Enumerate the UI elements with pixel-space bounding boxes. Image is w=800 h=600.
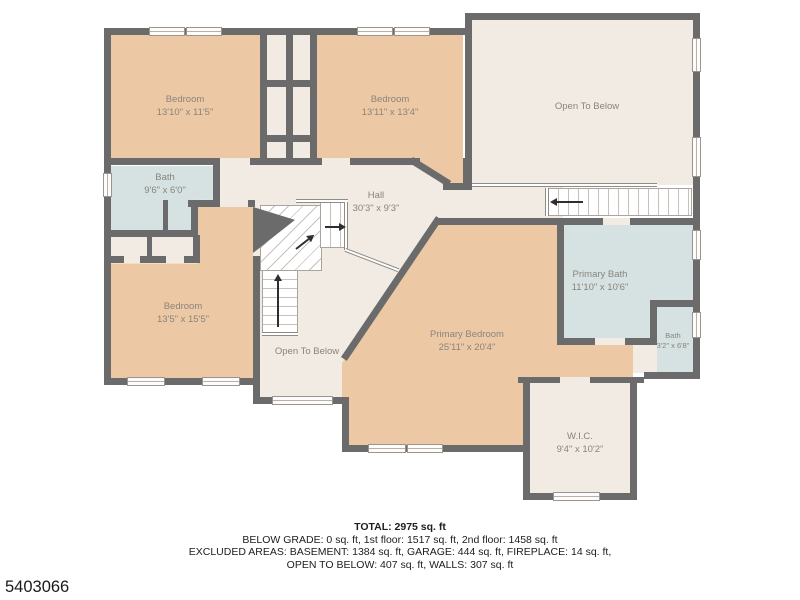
room-label-open-to-below-center: Open To Below [275,345,339,358]
wall [644,372,700,379]
wall [104,28,111,385]
wall [630,377,637,500]
window [692,137,701,177]
wall [248,200,255,207]
room-label-bath-small: Bath3'2" x 6'8" [657,331,690,351]
stairs-top-right-end-railing [545,188,549,216]
window [394,27,430,36]
wall [523,377,530,500]
wall [260,35,267,165]
wall [310,35,317,165]
area-summary: TOTAL: 2975 sq. ft BELOW GRADE: 0 sq. ft… [0,521,800,571]
window [202,377,240,386]
room-label-wic: W.I.C.9'4" x 10'2" [557,430,604,456]
wall [140,256,166,263]
window [407,444,443,453]
wall [253,256,260,404]
window [149,27,185,36]
room-label-bedroom-left: Bedroom13'5" x 15'5" [157,300,209,326]
wall [193,235,200,263]
listing-id: 5403066 [5,578,69,597]
stairs-top-railing [296,199,348,203]
room-label-bath-top-left: Bath9'6" x 6'0" [144,171,186,197]
excluded-areas-text: EXCLUDED AREAS: BASEMENT: 1384 sq. ft, G… [0,546,800,559]
total-area-text: TOTAL: 2975 sq. ft [0,521,800,534]
below-grade-text: BELOW GRADE: 0 sq. ft, 1st floor: 1517 s… [0,534,800,547]
window [272,396,333,405]
room-label-hall: Hall30'3" x 9'3" [353,189,400,215]
wall [111,256,124,263]
stairs-top-right-railing [472,183,657,187]
primary-bath-bottom-door-gap [595,338,625,346]
wall [463,158,472,190]
room-label-primary-bath: Primary Bath11'10" x 10'6" [572,268,629,294]
wall [163,200,168,230]
window [692,312,701,338]
excluded-areas-text-2: OPEN TO BELOW: 407 sq. ft, WALLS: 307 sq… [0,559,800,572]
wall [213,158,220,207]
window [692,38,701,72]
window [692,230,701,260]
room-label-bedroom-top-left: Bedroom13'10" x 11'5" [157,93,214,119]
wall [104,158,217,165]
wall [557,218,564,345]
wall [342,397,349,452]
window [127,377,165,386]
wall [286,35,293,165]
window [553,492,600,501]
window [368,444,406,453]
room-label-bedroom-top-middle: Bedroom13'11" x 13'4" [362,93,419,119]
stairs-bottom-railing [262,332,298,336]
room-label-open-to-below-top-right: Open To Below [555,100,619,113]
room-label-primary-bedroom: Primary Bedroom25'11" x 20'4" [430,328,504,354]
window [186,27,222,36]
wall [147,235,152,257]
wall [465,13,700,20]
wall [630,218,700,225]
window [357,27,393,36]
floor-plan-page: Bedroom13'10" x 11'5" Bedroom13'11" x 13… [0,0,800,600]
window [103,173,112,197]
bath-vestibule-area [633,345,657,373]
wall [435,218,603,225]
wall [191,207,198,237]
